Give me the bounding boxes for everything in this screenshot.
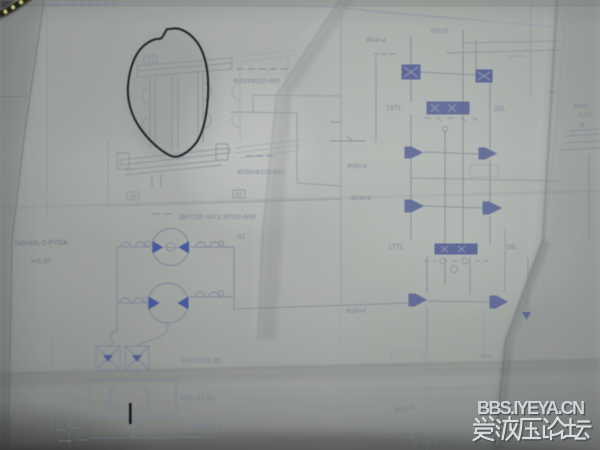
svg-text:19TL: 19TL bbox=[386, 105, 402, 112]
svg-text:Φ145.: Φ145. bbox=[573, 104, 590, 110]
svg-text:1a(m)1L-2-P72/A: 1a(m)1L-2-P72/A bbox=[14, 240, 68, 247]
svg-text:9VP22S1-30: 9VP22S1-30 bbox=[181, 358, 221, 365]
svg-text:DG16: DG16 bbox=[451, 432, 468, 439]
svg-text:20L: 20L bbox=[494, 106, 506, 113]
svg-text:BBS.IYEYA.CN: BBS.IYEYA.CN bbox=[477, 398, 585, 418]
svg-text:Z4610-LS: Z4610-LS bbox=[192, 424, 223, 431]
svg-text:v=1.37: v=1.37 bbox=[31, 258, 51, 265]
svg-text:Φ: Φ bbox=[580, 123, 585, 129]
svg-text:DG15: DG15 bbox=[431, 28, 448, 35]
svg-text:18L: 18L bbox=[506, 244, 518, 251]
svg-text:Φ250/Φ310-800: Φ250/Φ310-800 bbox=[237, 169, 284, 176]
svg-text:X3: X3 bbox=[130, 195, 137, 201]
svg-text:Sc1: Sc1 bbox=[481, 354, 492, 360]
svg-text:Φ24×4: Φ24×4 bbox=[366, 37, 386, 44]
svg-text:PJC-91.5U: PJC-91.5U bbox=[181, 395, 215, 402]
svg-text:17TL: 17TL bbox=[388, 244, 404, 251]
svg-text:油P715P·0473 3P510-60M: 油P715P·0473 3P510-60M bbox=[178, 212, 256, 221]
svg-text:X2: X2 bbox=[235, 193, 242, 199]
svg-text:Φ28×4: Φ28×4 bbox=[351, 195, 371, 202]
svg-text:Φ28×4: Φ28×4 bbox=[346, 308, 366, 315]
svg-text:ALTV: ALTV bbox=[578, 113, 593, 119]
svg-text:Φ28×4: Φ28×4 bbox=[347, 163, 367, 170]
svg-text:Φ250/Φ310-800: Φ250/Φ310-800 bbox=[233, 78, 280, 85]
svg-text:S1: S1 bbox=[237, 234, 246, 241]
